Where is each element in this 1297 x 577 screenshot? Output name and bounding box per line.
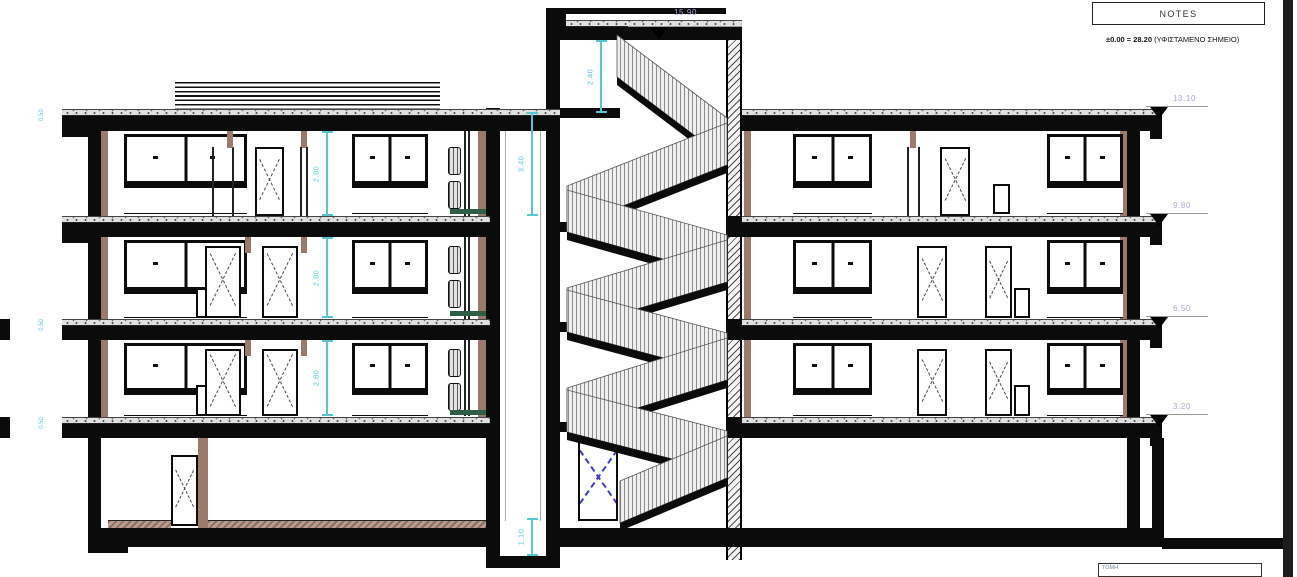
floor-slab — [62, 424, 490, 438]
elevation-triangle-icon — [1150, 415, 1168, 427]
roof-slab — [62, 116, 490, 131]
dimension-floor2-height: 2.80 — [326, 237, 328, 318]
door — [255, 147, 284, 216]
window-spandrel — [793, 391, 872, 416]
shelf-line — [450, 311, 486, 316]
sheet-edge-bar — [1283, 0, 1293, 577]
window — [352, 134, 428, 184]
lintel-finish — [245, 237, 251, 253]
window-mullion — [184, 243, 187, 287]
elevation-marker-second-floor: 6.50 — [1146, 304, 1216, 334]
title-block: ΤΟΜΗ — [1098, 563, 1262, 577]
door — [985, 246, 1012, 318]
window-mullion — [184, 137, 187, 181]
foundation-slab-right — [1162, 538, 1283, 549]
elevation-marker-tower-roof: 15.90 — [628, 2, 748, 42]
cabinet — [1014, 385, 1030, 416]
dimension-label: 2.80 — [312, 165, 321, 182]
floor-screed — [62, 216, 490, 223]
door — [262, 246, 298, 318]
basement-door — [171, 455, 198, 526]
window-spandrel — [352, 184, 428, 214]
lintel-finish — [301, 131, 307, 148]
foundation-step — [88, 547, 128, 553]
elevation-marker-first-floor: 3.20 — [1146, 402, 1216, 432]
radiator-icon — [448, 246, 461, 274]
doorway-jamb-line — [212, 147, 214, 216]
window-handle-dot — [405, 156, 410, 159]
window — [352, 343, 428, 391]
elevation-triangle-icon — [1150, 214, 1168, 226]
window-spandrel — [352, 391, 428, 416]
basement-wall-right — [1152, 438, 1164, 538]
doorway-jamb-line — [232, 147, 234, 216]
slab-edge-lip — [1150, 131, 1162, 139]
slab-cut-stub — [0, 319, 10, 340]
roof-slab — [742, 116, 1162, 131]
radiator-icon — [448, 280, 461, 308]
slab-edge-label: 0.50 — [39, 319, 45, 331]
roof-screed — [742, 109, 1162, 116]
door — [917, 246, 947, 318]
slab-edge-lip — [62, 131, 92, 137]
window-spandrel — [1047, 391, 1123, 416]
floor-slab — [742, 326, 1162, 340]
cabinet — [993, 184, 1010, 214]
floor-slab — [62, 326, 490, 340]
notes-title: NOTES — [1159, 9, 1197, 19]
window-spandrel — [352, 290, 428, 318]
window — [793, 240, 872, 290]
window — [1047, 134, 1123, 184]
door — [205, 246, 241, 318]
lintel-finish — [301, 237, 307, 253]
elevation-marker-roof: 13.10 — [1146, 94, 1216, 124]
title-block-label: ΤΟΜΗ — [1102, 565, 1118, 571]
door — [985, 349, 1012, 416]
dimension-floor1-height: 2.80 — [326, 340, 328, 416]
door — [917, 349, 947, 416]
doorway-jamb-line — [907, 147, 909, 216]
elevation-marker-third-floor: 9.80 — [1146, 201, 1216, 231]
benchmark-note: ±0.00 = 28.20 (ΥΦΙΣΤΑΜΕΝΟ ΣΗΜΕΙΟ) — [1106, 35, 1239, 44]
roof-screed — [62, 109, 490, 116]
floor-slab — [62, 223, 490, 237]
elevation-line — [628, 26, 742, 27]
elevation-triangle-icon — [1150, 317, 1168, 329]
elevation-triangle-icon — [650, 27, 668, 39]
lintel-finish — [301, 340, 307, 356]
floor-screed — [742, 216, 1162, 223]
shelf-line — [450, 410, 486, 415]
cabinet — [1014, 288, 1030, 318]
window-spandrel — [124, 184, 247, 214]
window-handle-dot — [153, 156, 158, 159]
door — [940, 147, 970, 216]
window-spandrel — [1047, 290, 1123, 318]
door — [262, 349, 298, 416]
floor-slab — [742, 223, 1162, 237]
window-mullion — [389, 137, 392, 181]
elevation-triangle-icon — [1150, 107, 1168, 119]
window — [793, 343, 872, 391]
floor-screed — [742, 417, 1162, 424]
elevation-value: 9.80 — [1173, 201, 1191, 210]
dimension-label: 2.80 — [312, 269, 321, 286]
radiator-icon — [448, 147, 461, 175]
dimension-label: 1.10 — [517, 529, 526, 546]
doorway-jamb-line — [918, 147, 920, 216]
window — [793, 134, 872, 184]
radiator-icon — [448, 181, 461, 209]
floor-screed — [62, 319, 490, 326]
window-handle-dot — [153, 262, 158, 265]
dimension-shaft-top: 3.40 — [531, 112, 533, 216]
radiator-icon — [448, 349, 461, 377]
dimension-label: 2.80 — [312, 370, 321, 387]
window-spandrel — [1047, 184, 1123, 214]
radiator-icon — [448, 383, 461, 411]
elevation-value: 3.20 — [1173, 402, 1191, 411]
window — [352, 240, 428, 290]
slab-cut-stub — [0, 417, 10, 438]
dimension-elevator-pit: 1.10 — [531, 518, 533, 556]
basement-wall-finish — [198, 438, 208, 528]
lintel-finish — [227, 131, 233, 148]
wall-core-left-finish — [478, 131, 486, 432]
dimension-floor3-height: 2.80 — [326, 131, 328, 216]
window-spandrel — [793, 184, 872, 214]
window — [1047, 343, 1123, 391]
dimension-label: 2.40 — [586, 68, 595, 85]
doorway-jamb-line — [306, 147, 308, 216]
section-drawing-canvas: 2.80 2.80 — [0, 0, 1297, 577]
window-spandrel — [793, 290, 872, 318]
notes-box: NOTES — [1092, 2, 1265, 25]
lintel-finish — [245, 340, 251, 356]
slab-edge-lip — [62, 237, 92, 243]
benchmark-suffix: (ΥΦΙΣΤΑΜΕΝΟ ΣΗΜΕΙΟ) — [1154, 35, 1239, 44]
dimension-label: 3.40 — [517, 156, 526, 173]
elevation-value: 13.10 — [1173, 94, 1196, 103]
door — [205, 349, 241, 416]
dimension-tower-parapet: 2.40 — [600, 40, 602, 113]
stair-flights — [540, 10, 750, 566]
elevator-guide-rail — [505, 131, 506, 521]
shelf-line — [450, 209, 486, 214]
doorway-jamb-line — [300, 147, 302, 216]
window-handle-dot — [370, 156, 375, 159]
slab-edge-label: 0.50 — [39, 109, 45, 121]
elevation-value: 15.90 — [674, 8, 697, 17]
partition-line — [464, 131, 466, 416]
slab-edge-lip — [1150, 340, 1162, 348]
slab-edge-label: 0.50 — [39, 417, 45, 429]
window — [1047, 240, 1123, 290]
floor-screed — [742, 319, 1162, 326]
elevation-value: 6.50 — [1173, 304, 1191, 313]
slab-edge-lip — [1150, 237, 1162, 245]
floor-screed — [62, 417, 490, 424]
partition-line — [468, 131, 470, 416]
floor-slab — [742, 424, 1162, 438]
benchmark-value: ±0.00 = 28.20 — [1106, 35, 1152, 44]
wall-left-inner-finish — [101, 131, 108, 432]
lintel-finish — [910, 131, 916, 148]
